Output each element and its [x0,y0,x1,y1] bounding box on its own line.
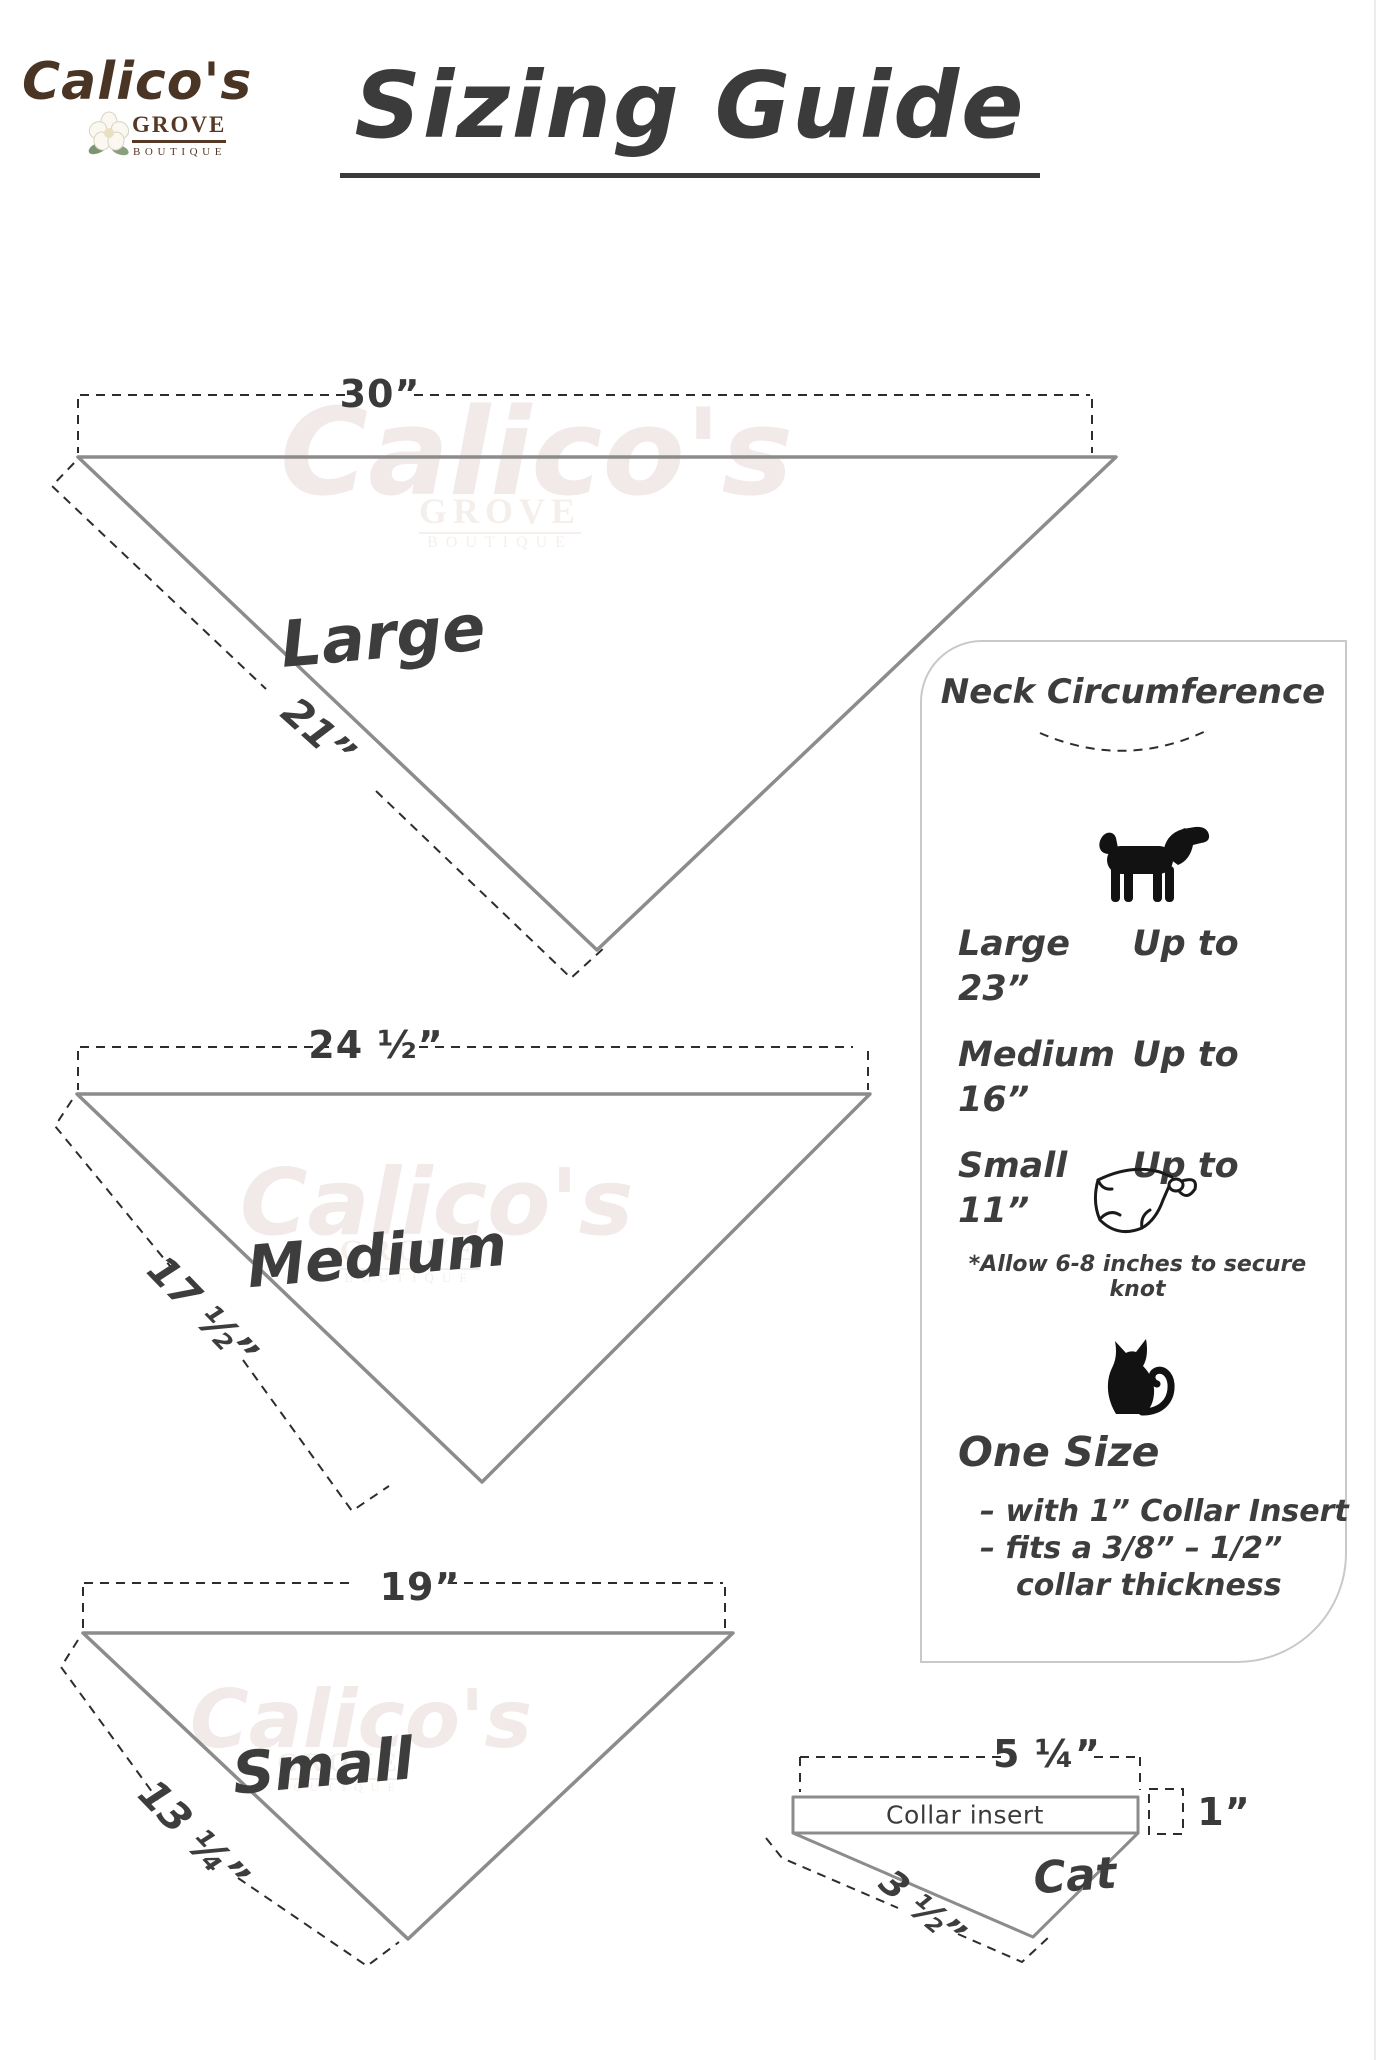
dog-icon [1093,818,1215,912]
one-size-bullet-3: collar thickness [1016,1568,1282,1603]
cat-icon [1098,1330,1180,1416]
one-size-bullet-2: – fits a 3/8” – 1/2” [980,1531,1282,1566]
dog-size-row: Medium Up to 16” [958,1033,1318,1123]
small-side-dimension-dashes [61,1640,399,1966]
small-top-measurement: 19” [380,1565,461,1609]
medium-top-measurement: 24 ½” [308,1023,443,1067]
sizing-guide-page: Calico's GROVE BOUTIQUE Calico's GROVE B… [0,0,1376,2060]
one-size-heading: One Size [958,1428,1159,1476]
knot-note: *Allow 6-8 inches to secure knot [945,1252,1330,1302]
bandana-icon [1088,1158,1202,1250]
cat-top-measurement: 5 ¼” [993,1732,1101,1776]
collar-insert-label: Collar insert [886,1801,1044,1830]
cat-insert-height-measurement: 1” [1197,1790,1250,1834]
dog-size-name: Large [958,922,1120,967]
panel-title: Neck Circumference [933,672,1333,712]
large-top-dimension-dashes [78,395,1092,453]
medium-top-dimension-dashes [78,1047,868,1090]
cat-size-label: Cat [1032,1848,1118,1905]
dog-size-name: Medium [958,1033,1120,1078]
large-top-measurement: 30” [340,372,421,416]
one-size-bullet-1: – with 1” Collar Insert [980,1494,1349,1529]
dog-size-row: Large Up to 23” [958,922,1318,1012]
cat-insert-height-dashes [1149,1789,1183,1834]
